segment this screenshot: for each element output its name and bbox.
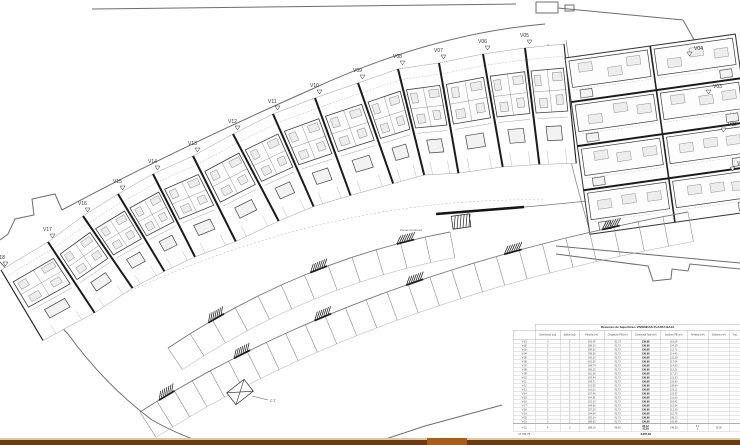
villa-label: V07 bbox=[434, 48, 443, 54]
pergola-hatch-icon bbox=[504, 242, 522, 254]
zone-label: Zonas Comunes bbox=[400, 228, 423, 232]
retaining-wall bbox=[436, 207, 524, 214]
footer-accent-segment bbox=[427, 438, 467, 445]
villa-label: V04 bbox=[694, 46, 703, 52]
villa-label: V10 bbox=[310, 83, 319, 89]
column-header: Solárium (m²) bbox=[708, 330, 729, 339]
villa-marker-icon bbox=[360, 75, 365, 79]
villa-label: V02 bbox=[728, 122, 737, 128]
pergola-hatch-icon bbox=[314, 306, 331, 321]
cell: 4 bbox=[535, 424, 560, 432]
villa-label: V17 bbox=[43, 227, 52, 233]
table-row-special: V-2243388,1098,4584,1252,93148,305,1130,… bbox=[513, 424, 740, 432]
villa-label: V16 bbox=[78, 201, 87, 207]
villa-label: V15 bbox=[113, 179, 122, 185]
cell bbox=[660, 431, 687, 436]
column-header: Tras bbox=[729, 330, 740, 339]
villa-label: V05 bbox=[520, 33, 529, 39]
column-header: Dormitorios (ud) bbox=[535, 330, 560, 339]
cell: 30,00 bbox=[708, 424, 729, 432]
column-header: Parcela (m²) bbox=[579, 330, 604, 339]
villa-marker-icon bbox=[400, 61, 405, 65]
cell bbox=[579, 431, 604, 436]
pergola-hatch-icon bbox=[234, 343, 250, 359]
terrace-row: V18V17V16V15V14V13V12V11V10V09V08V07V06V… bbox=[0, 33, 576, 340]
villa-label: V18 bbox=[0, 255, 5, 261]
villa-marker-icon bbox=[275, 106, 280, 110]
column-header: Construida Total (m²) bbox=[631, 330, 660, 339]
cell bbox=[560, 431, 579, 436]
parking-row bbox=[168, 232, 455, 370]
villa-marker-icon bbox=[527, 40, 532, 44]
villa-marker-icon bbox=[485, 46, 490, 50]
table-header-row: Dormitorios (ud)Baños (ud)Parcela (m²)Oc… bbox=[513, 330, 740, 339]
villa-marker-icon bbox=[441, 55, 446, 59]
right-block: V04V03V02V01 bbox=[565, 34, 740, 234]
stair-hatch-icon bbox=[451, 214, 472, 230]
villa-marker-icon bbox=[120, 186, 125, 190]
total-construida: 3.007,33 bbox=[631, 431, 660, 436]
annotations: C.T.Zonas Comunes bbox=[227, 214, 472, 405]
cell bbox=[687, 431, 708, 436]
cell bbox=[729, 424, 740, 432]
villa-label: V06 bbox=[478, 39, 487, 45]
villa-label: V12 bbox=[228, 119, 237, 125]
cell bbox=[708, 431, 729, 436]
cell bbox=[604, 431, 631, 436]
footer-bar bbox=[0, 440, 740, 445]
villa-label: V14 bbox=[148, 159, 157, 165]
cell: V-22 bbox=[513, 424, 535, 432]
pergola-hatch-icon bbox=[159, 383, 174, 400]
surface-summary: Resumen de Superficies VIVIENDAS PLANTA … bbox=[513, 324, 740, 445]
pergola-hatch-icon bbox=[406, 272, 423, 285]
villa-marker-icon bbox=[155, 166, 160, 170]
table-totals-row: 17.791,793.007,33 bbox=[513, 431, 740, 436]
cell: 148,30 bbox=[660, 424, 687, 432]
transformer-icon bbox=[227, 379, 254, 404]
cell: 5,11 bbox=[687, 424, 708, 432]
villa-label: V03 bbox=[713, 84, 722, 90]
site-plan-page: V18V17V16V15V14V13V12V11V10V09V08V07V06V… bbox=[0, 0, 740, 445]
pergola-hatch-icon bbox=[397, 232, 415, 244]
total-left: 17.791,79 bbox=[513, 431, 535, 436]
pergola-hatch-icon bbox=[310, 259, 327, 273]
cell: 98,45 bbox=[604, 424, 631, 432]
cell: 3 bbox=[560, 424, 579, 432]
cell bbox=[535, 431, 560, 436]
villa-label: V08 bbox=[393, 54, 402, 60]
villa-marker-icon bbox=[235, 126, 240, 130]
villa-label: V11 bbox=[268, 99, 277, 105]
pergola-hatch-icon bbox=[208, 306, 224, 322]
cell bbox=[729, 431, 740, 436]
villa-marker-icon bbox=[195, 148, 200, 152]
cell: 388,10 bbox=[579, 424, 604, 432]
column-header: Jardines PB (m²) bbox=[660, 330, 687, 339]
villa-marker-icon bbox=[85, 208, 90, 212]
column-header: Terrazas (m²) bbox=[687, 330, 708, 339]
transformer-label: C.T. bbox=[270, 399, 277, 403]
villa-marker-icon bbox=[317, 90, 322, 94]
cell: 84,1252,93 bbox=[631, 424, 660, 432]
villa-label: V13 bbox=[188, 141, 197, 147]
column-header bbox=[513, 330, 535, 339]
column-header: Ocupación PB (m²) bbox=[604, 330, 631, 339]
surface-summary-table: Resumen de Superficies VIVIENDAS PLANTA … bbox=[513, 324, 740, 437]
villa-label: V09 bbox=[353, 68, 362, 74]
column-header: Baños (ud) bbox=[560, 330, 579, 339]
